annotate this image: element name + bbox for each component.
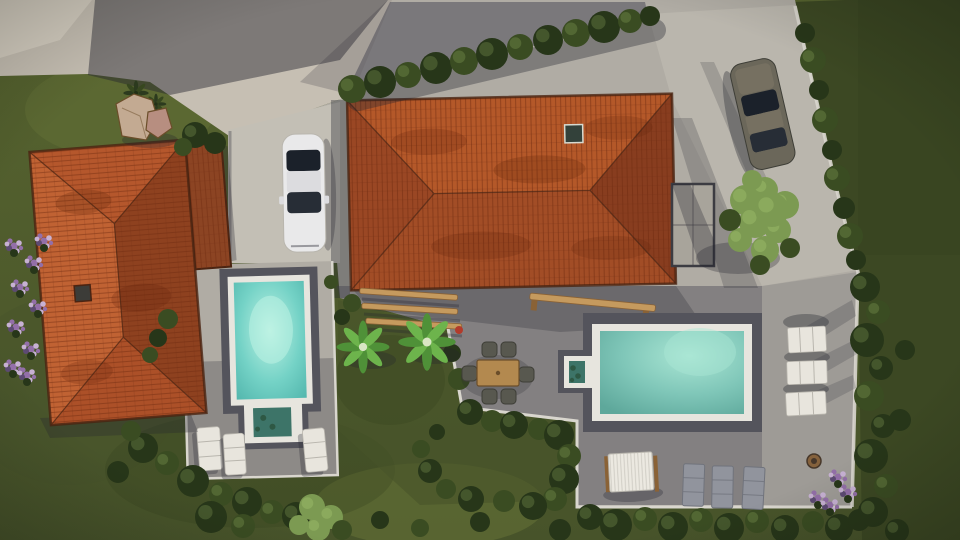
aerial-villa-render <box>0 0 960 540</box>
vignette <box>0 0 960 540</box>
scene-canvas <box>0 0 960 540</box>
